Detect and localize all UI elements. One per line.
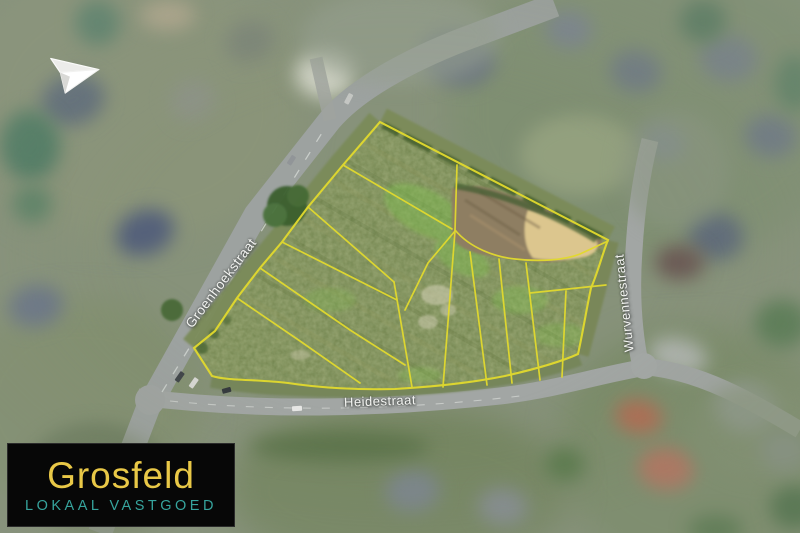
- logo-tagline: LOKAAL VASTGOED: [25, 498, 217, 514]
- road-wurvennestraat: [633, 140, 650, 368]
- car: [292, 406, 302, 412]
- paper-plane-icon: [46, 52, 102, 100]
- logo-brand: Grosfeld: [47, 457, 195, 494]
- car: [188, 377, 198, 389]
- logo-badge: Grosfeld LOKAAL VASTGOED: [7, 443, 235, 527]
- aerial-map: Groenhoekstraat Heidestraat Wurvennestra…: [0, 0, 800, 533]
